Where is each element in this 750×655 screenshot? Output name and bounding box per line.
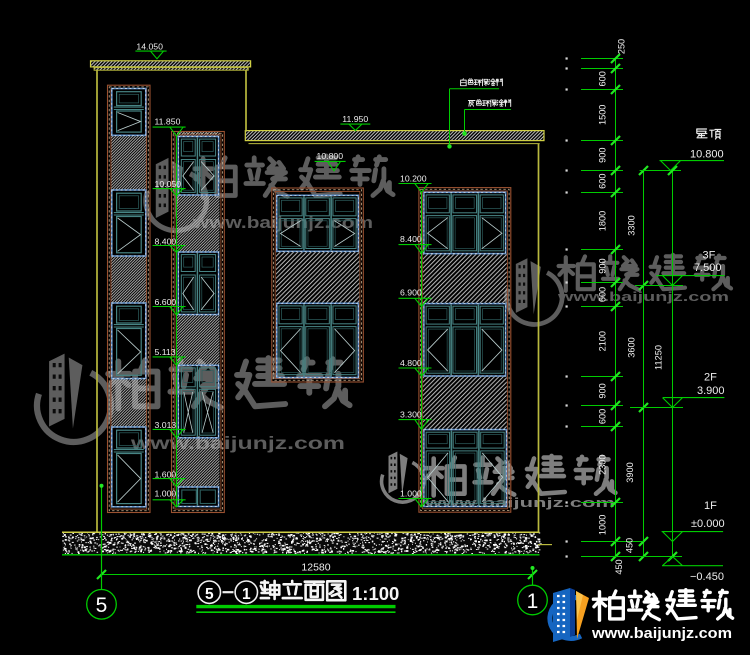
- svg-text:1500: 1500: [598, 105, 608, 125]
- svg-text:1: 1: [527, 590, 539, 613]
- svg-text:10.200: 10.200: [400, 173, 427, 183]
- svg-text:3F: 3F: [703, 250, 716, 262]
- svg-text:600: 600: [598, 409, 608, 424]
- svg-text:14.050: 14.050: [136, 42, 163, 52]
- svg-text:11.850: 11.850: [155, 117, 181, 127]
- svg-text:600: 600: [598, 174, 608, 189]
- svg-text:3.013: 3.013: [155, 420, 177, 430]
- svg-text:www.baijunjz.com: www.baijunjz.com: [130, 433, 345, 453]
- svg-text:600: 600: [598, 71, 608, 86]
- svg-text:900: 900: [598, 148, 608, 163]
- svg-text:3.900: 3.900: [697, 385, 725, 397]
- svg-text:8.400: 8.400: [400, 234, 422, 244]
- svg-text:5: 5: [96, 594, 108, 617]
- svg-text:250: 250: [617, 39, 627, 54]
- svg-text:3.300: 3.300: [400, 410, 422, 420]
- svg-text:1800: 1800: [598, 211, 608, 231]
- svg-text:3300: 3300: [627, 215, 637, 235]
- svg-text:10.800: 10.800: [317, 151, 344, 161]
- svg-text:1:100: 1:100: [352, 583, 399, 604]
- svg-text:6.900: 6.900: [400, 287, 422, 297]
- svg-text:www.baijunjz.com: www.baijunjz.com: [556, 289, 729, 304]
- svg-text:1.000: 1.000: [400, 489, 422, 499]
- svg-text:10.800: 10.800: [690, 149, 724, 161]
- svg-text:2300: 2300: [598, 454, 608, 474]
- svg-text:5: 5: [205, 586, 214, 603]
- svg-text:www.baijunjz.com: www.baijunjz.com: [591, 626, 732, 642]
- svg-text:±0.000: ±0.000: [691, 518, 725, 530]
- svg-text:11.950: 11.950: [342, 114, 368, 124]
- svg-text:900: 900: [598, 383, 608, 398]
- svg-text:1F: 1F: [704, 500, 717, 512]
- svg-text:−0.450: −0.450: [690, 571, 724, 583]
- svg-text:12580: 12580: [301, 562, 330, 574]
- svg-text:450: 450: [614, 559, 624, 574]
- svg-text:1.000: 1.000: [155, 488, 177, 498]
- svg-text:1000: 1000: [598, 515, 608, 535]
- svg-text:3600: 3600: [627, 337, 637, 357]
- svg-text:600: 600: [598, 287, 608, 302]
- svg-text:900: 900: [598, 258, 608, 273]
- svg-text:8.400: 8.400: [155, 236, 177, 246]
- svg-text:6.600: 6.600: [155, 297, 177, 307]
- svg-text:3900: 3900: [625, 462, 635, 482]
- svg-text:1: 1: [242, 586, 251, 603]
- svg-text:7.500: 7.500: [694, 262, 722, 274]
- svg-text:2100: 2100: [598, 331, 608, 351]
- svg-text:2F: 2F: [704, 372, 717, 384]
- svg-text:10.050: 10.050: [155, 179, 182, 189]
- svg-text:11250: 11250: [654, 345, 664, 370]
- svg-text:5.113: 5.113: [155, 347, 176, 357]
- svg-text:450: 450: [625, 538, 635, 553]
- svg-text:4.800: 4.800: [400, 358, 422, 368]
